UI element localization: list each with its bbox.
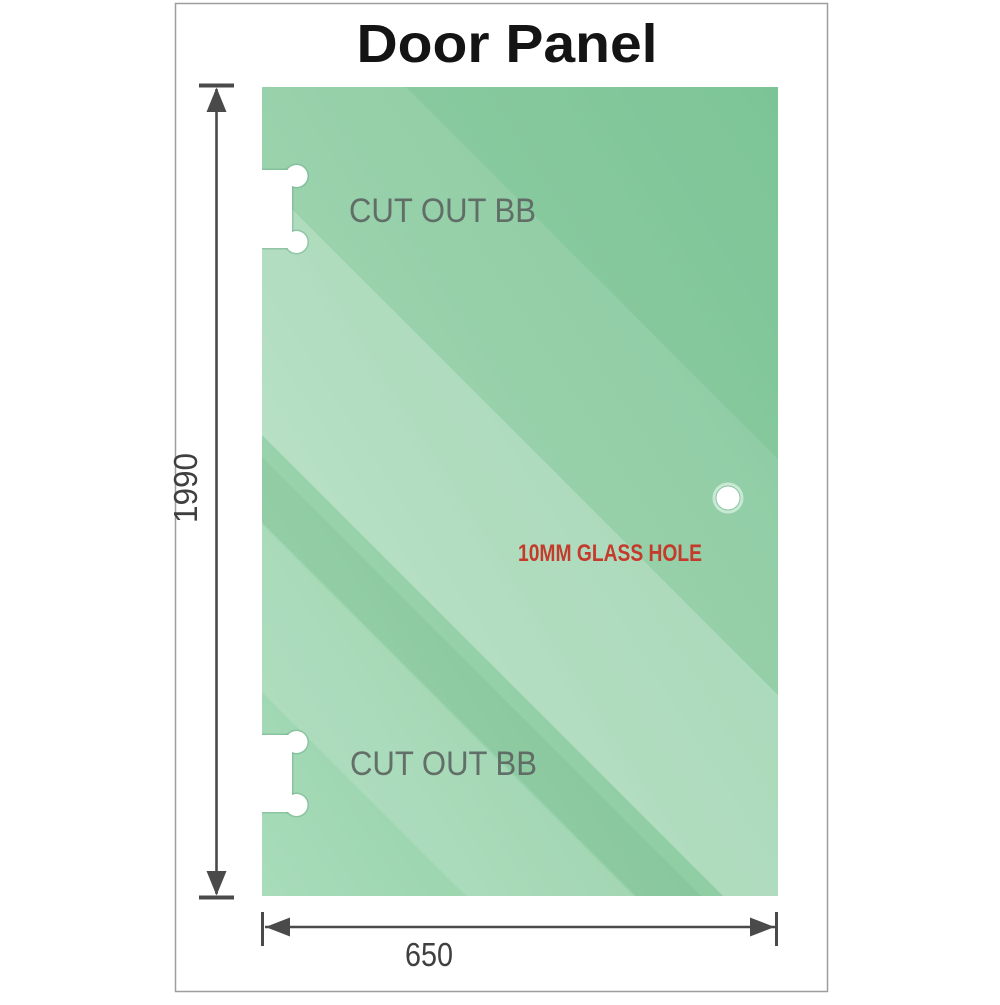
cutout-bottom-label: CUT OUT BB <box>350 745 537 783</box>
glass-hole <box>713 483 744 514</box>
width-dimension: 650 <box>263 912 777 973</box>
page-title: Door Panel <box>357 14 658 74</box>
cutout-notch <box>250 170 292 248</box>
product-diagram-image: Door Panel <box>0 0 1000 1000</box>
cutout-drill-hole <box>286 794 308 816</box>
glass-hole-label: 10MM GLASS HOLE <box>518 540 702 567</box>
cutout-notch <box>250 735 292 812</box>
door-panel-diagram: Door Panel <box>0 0 1000 1000</box>
dim-height-arrowhead-top <box>207 88 227 113</box>
dim-height-arrowhead-bottom <box>207 871 227 896</box>
width-dimension-value: 650 <box>405 936 453 973</box>
cutout-drill-hole <box>286 165 308 187</box>
cutout-drill-hole <box>286 731 308 753</box>
height-dimension-value: 1990 <box>167 453 204 523</box>
dim-width-arrowhead-left <box>266 918 291 937</box>
height-dimension: 1990 <box>167 86 234 898</box>
cutout-top-label: CUT OUT BB <box>349 192 536 230</box>
dim-width-arrowhead-right <box>750 918 775 937</box>
cutout-drill-hole <box>286 231 308 253</box>
glass-hole-circle <box>716 486 740 510</box>
